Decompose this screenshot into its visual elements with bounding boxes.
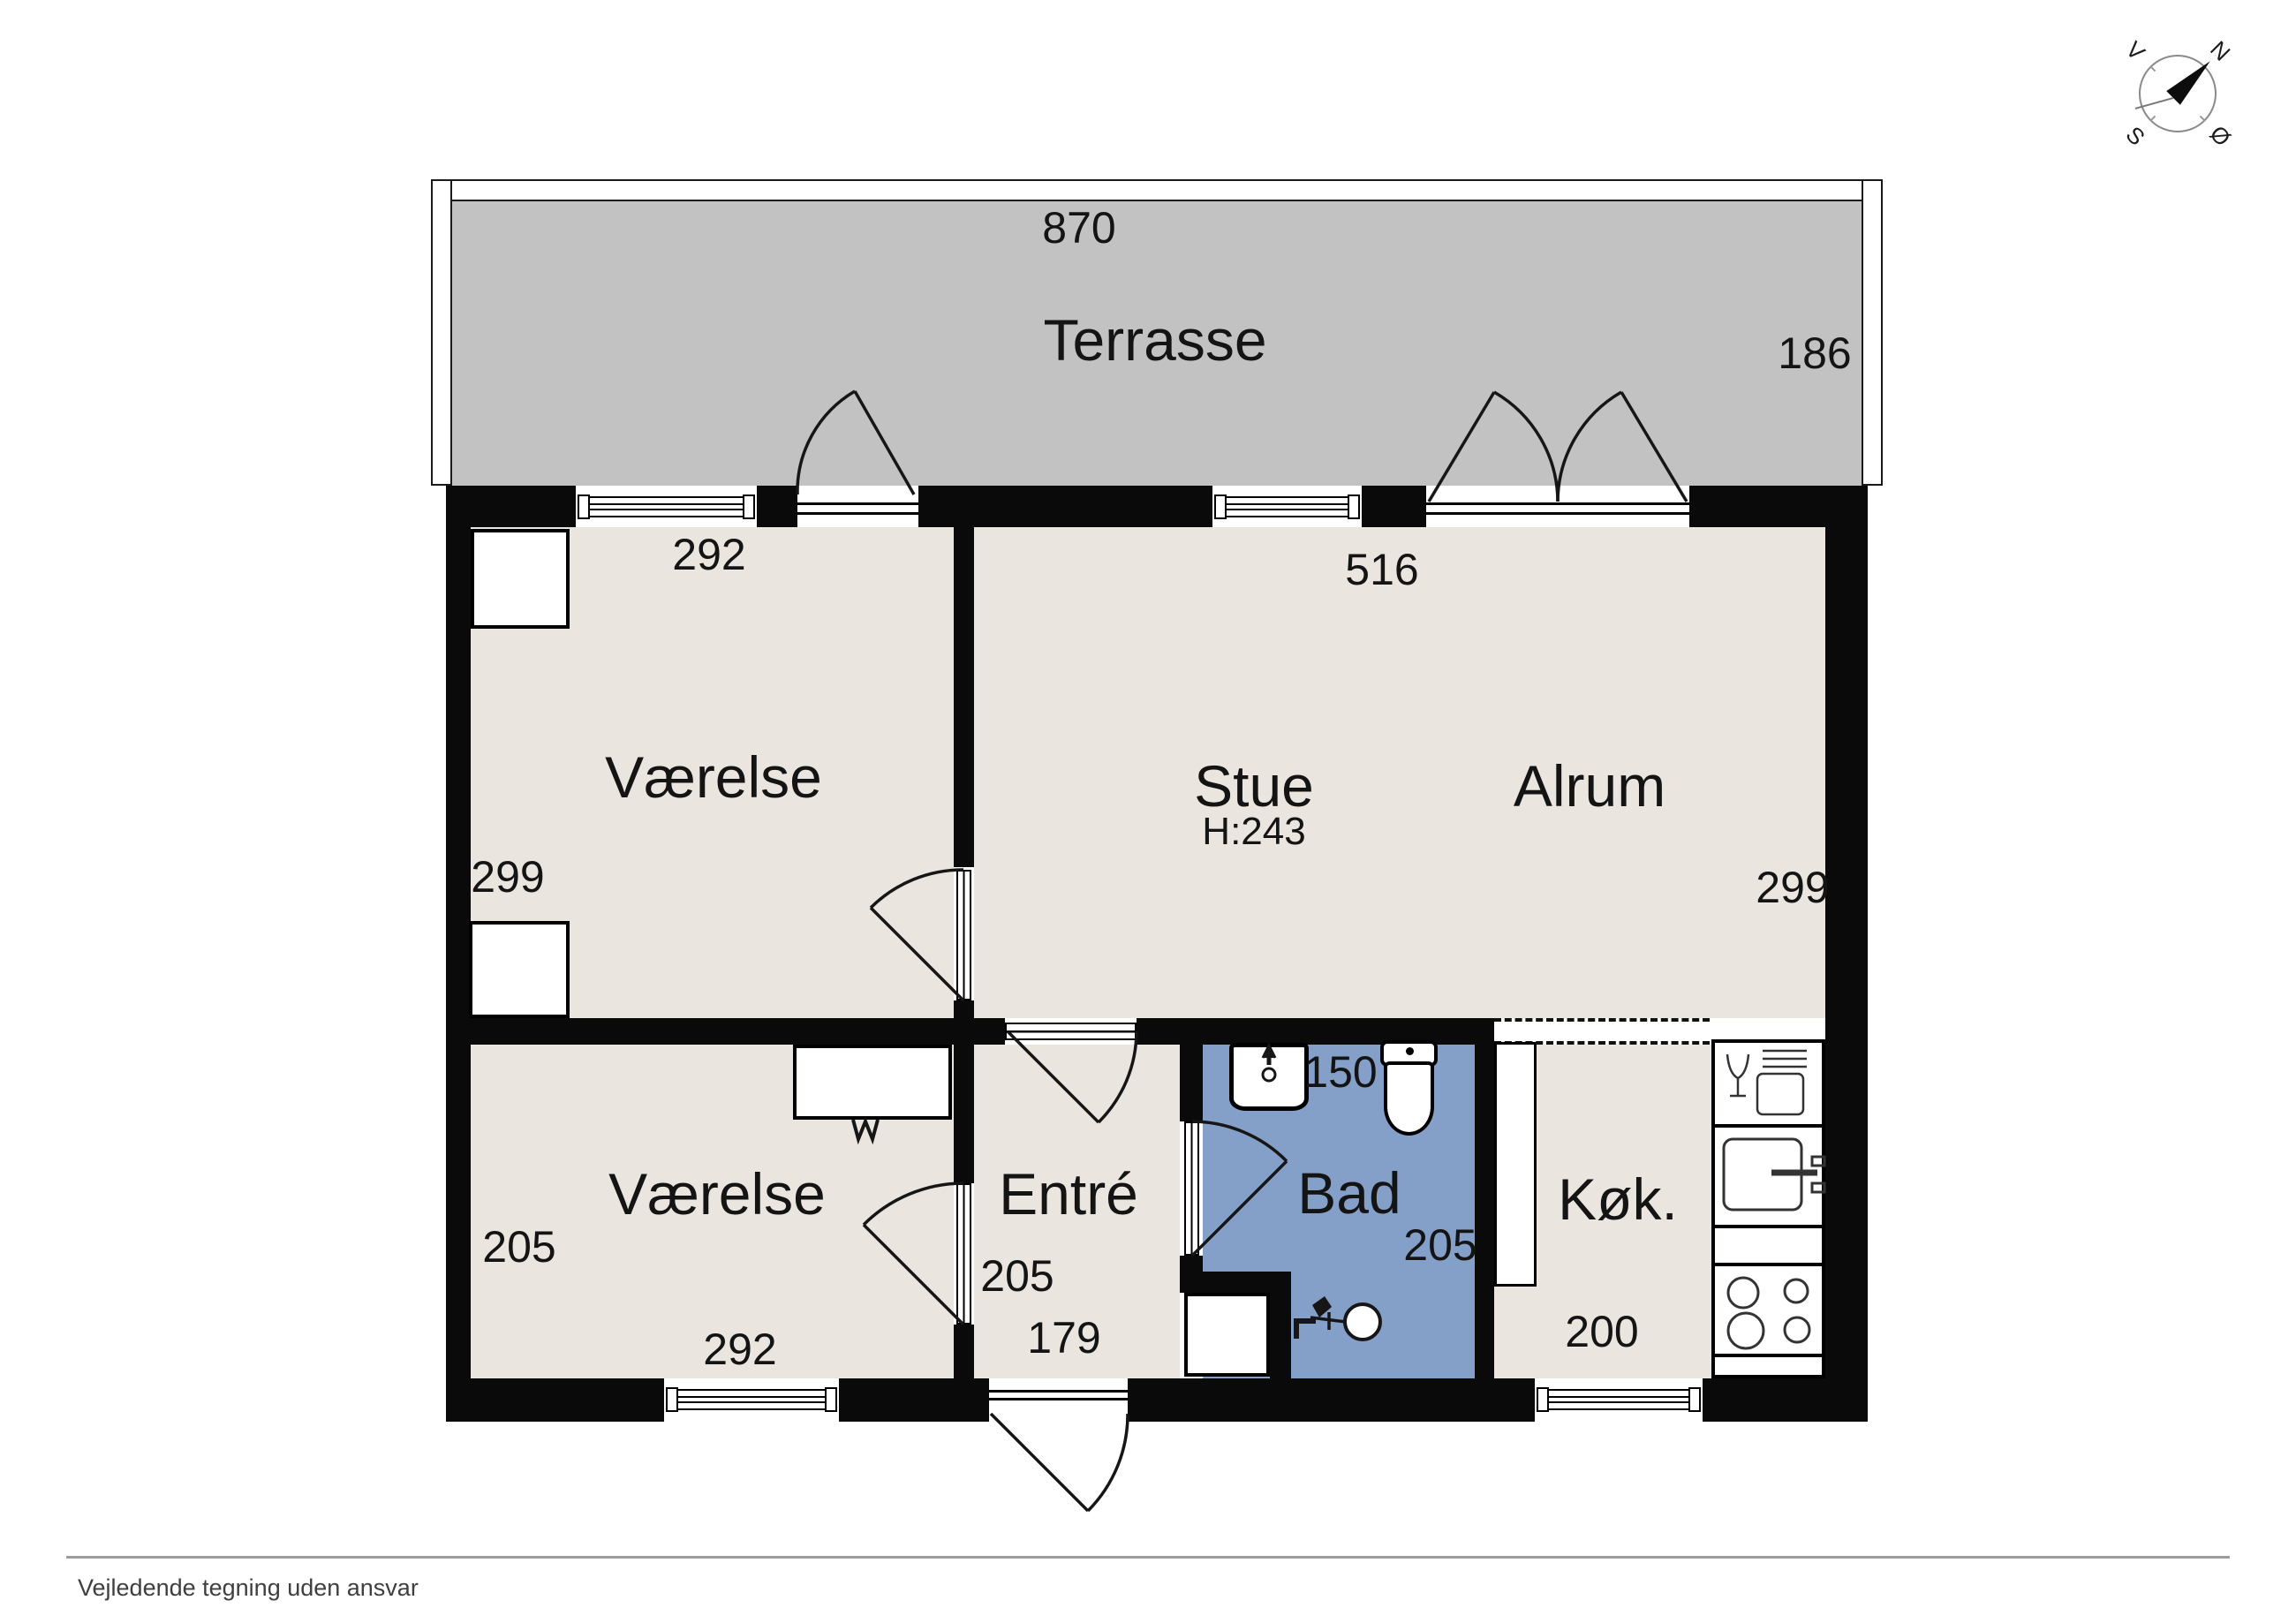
label-terrasse: Terrasse xyxy=(1043,311,1266,369)
desk-cable-icon xyxy=(853,1120,878,1139)
shower-icon xyxy=(1296,1296,1380,1340)
door-swing-vaerelse-top xyxy=(871,870,963,1000)
footer-divider xyxy=(66,1556,2230,1559)
dim-bad-width: 150 xyxy=(1303,1050,1377,1094)
sink-tap-icon xyxy=(1263,1046,1275,1081)
label-vaerelse-bottom: Værelse xyxy=(608,1165,826,1223)
dim-terrasse-depth: 186 xyxy=(1778,331,1851,375)
label-bad: Bad xyxy=(1297,1164,1401,1222)
label-alrum: Alrum xyxy=(1514,757,1665,815)
terrace-double-door-swing xyxy=(1429,392,1687,502)
label-stue-ceiling-height: H:243 xyxy=(1202,812,1305,851)
dim-vaerelse-bottom-width: 292 xyxy=(703,1327,776,1371)
door-swing-entre xyxy=(1008,1031,1137,1122)
dim-vaerelse-bottom-depth: 205 xyxy=(482,1225,555,1269)
dim-alrum-width: 516 xyxy=(1345,547,1418,592)
dim-terrasse-width: 870 xyxy=(1042,206,1115,250)
front-door-swing xyxy=(991,1414,1128,1511)
label-vaerelse-top: Værelse xyxy=(605,748,822,806)
label-stue: Stue xyxy=(1194,757,1314,815)
dim-entre-depth: 205 xyxy=(980,1254,1054,1298)
dim-kok-width: 200 xyxy=(1565,1310,1638,1354)
terrace-door-swing xyxy=(797,391,914,494)
door-swing-bad xyxy=(1192,1121,1287,1256)
dim-vaerelse-top-depth: 299 xyxy=(471,855,544,899)
dim-entre-width: 179 xyxy=(1027,1316,1100,1360)
stove-icon xyxy=(1728,1278,1809,1348)
label-entre: Entré xyxy=(999,1165,1138,1223)
door-swing-vaerelse-bottom xyxy=(864,1183,963,1325)
dishwasher-icon xyxy=(1727,1051,1807,1114)
dim-alrum-depth: 299 xyxy=(1756,865,1829,910)
label-kok: Køk. xyxy=(1558,1170,1678,1228)
floor-plan: 870 Terrasse 186 292 Værelse 299 516 Stu… xyxy=(0,0,2296,1623)
dim-vaerelse-top-width: 292 xyxy=(672,532,745,577)
kitchen-sink-icon xyxy=(1724,1139,1824,1210)
dim-bad-depth: 205 xyxy=(1403,1223,1477,1267)
footer-disclaimer: Vejledende tegning uden ansvar xyxy=(78,1574,419,1602)
linework-layer xyxy=(0,0,2296,1623)
